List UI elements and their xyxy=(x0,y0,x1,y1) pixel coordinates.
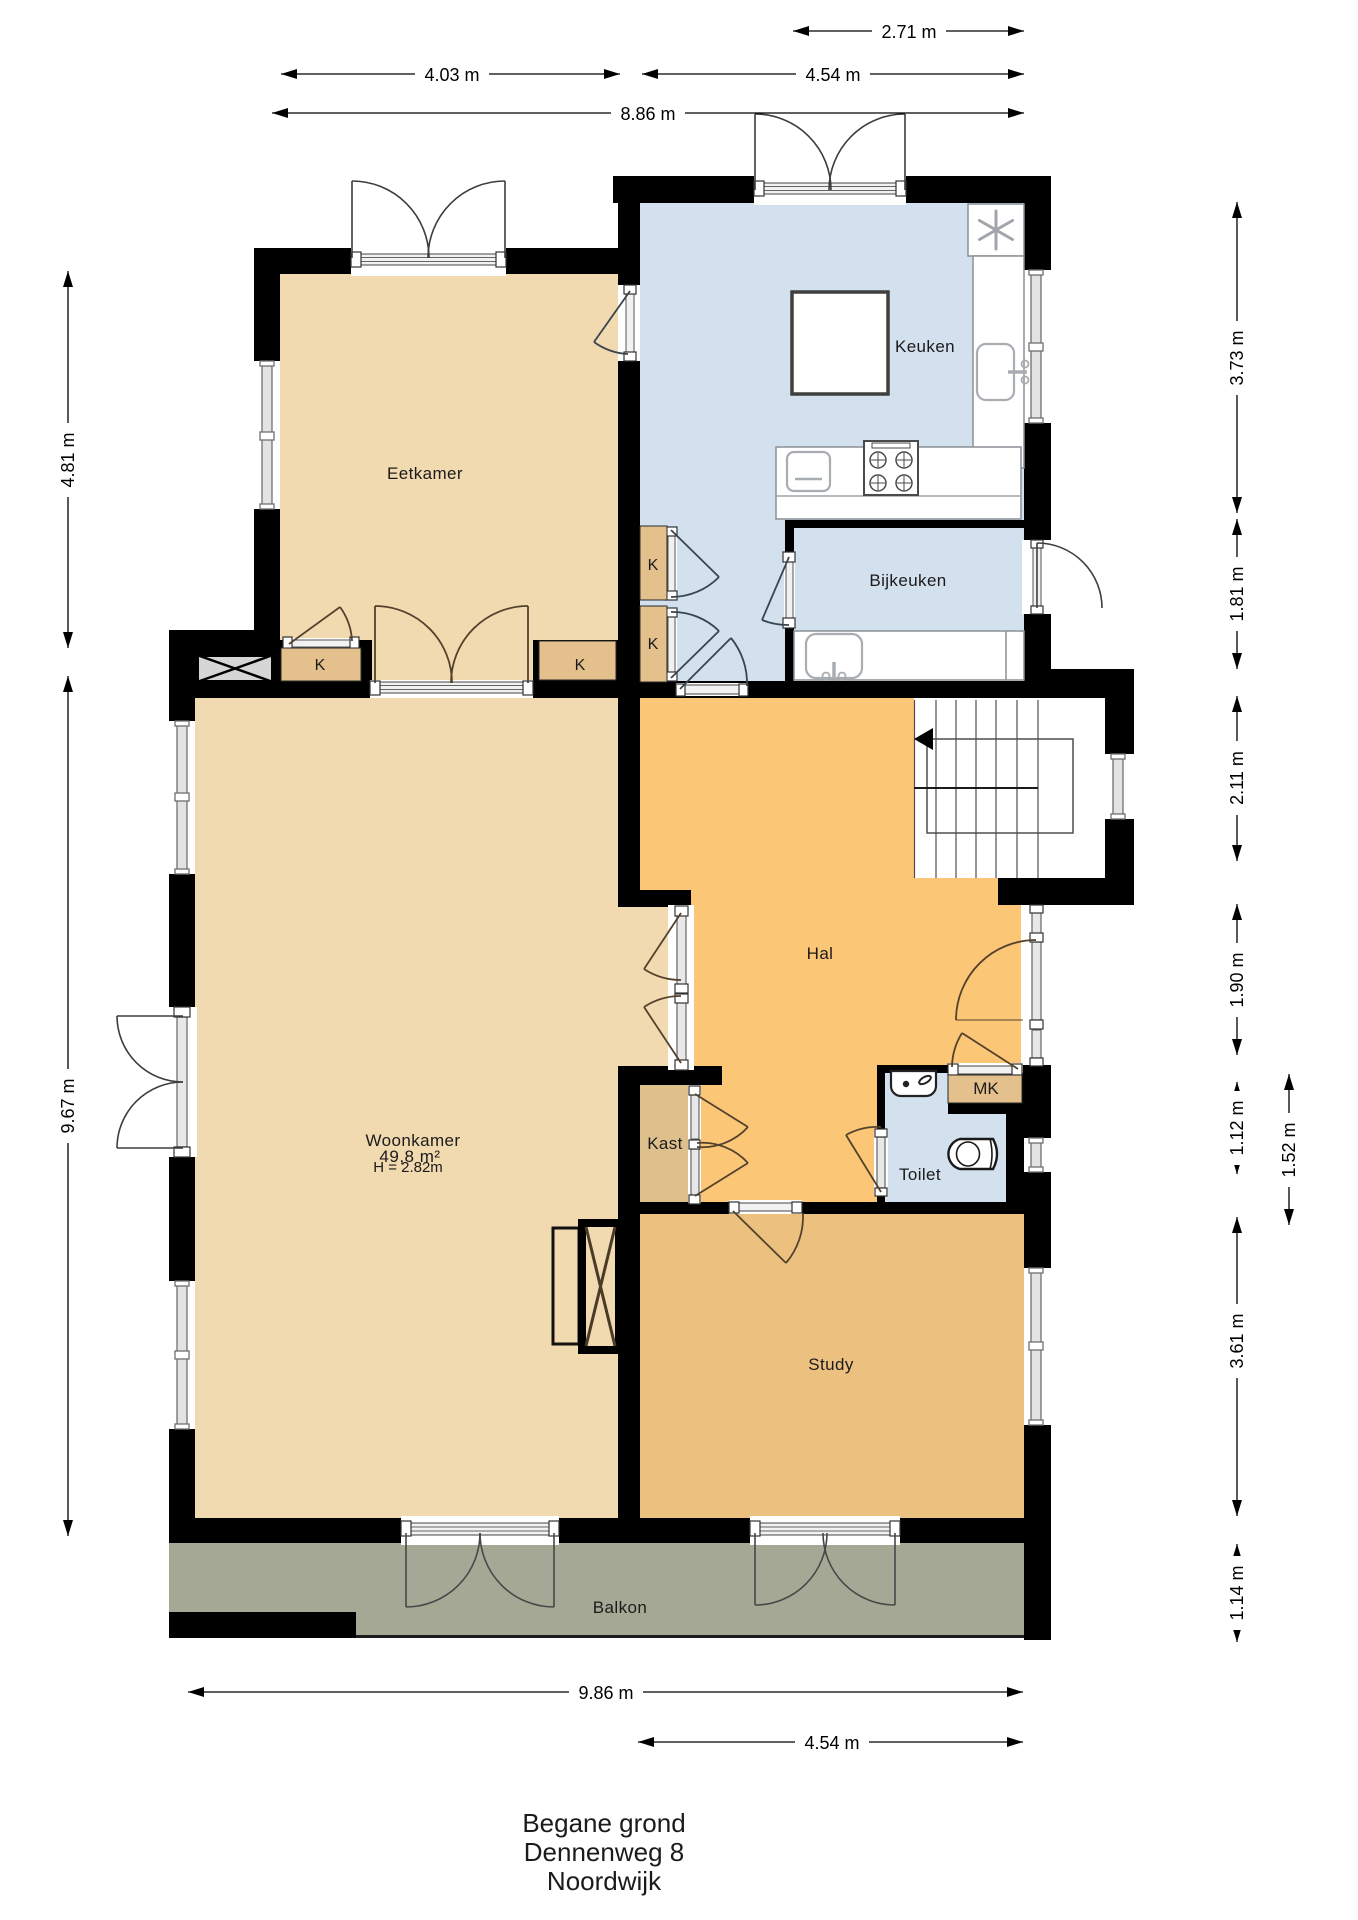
svg-text:Dennenweg 8: Dennenweg 8 xyxy=(524,1837,684,1867)
svg-text:K: K xyxy=(648,557,659,574)
svg-text:3.61 m: 3.61 m xyxy=(1227,1313,1247,1368)
svg-text:1.12 m: 1.12 m xyxy=(1227,1100,1247,1155)
svg-text:2.71 m: 2.71 m xyxy=(881,22,936,42)
svg-text:Begane grond: Begane grond xyxy=(522,1808,685,1838)
svg-text:Toilet: Toilet xyxy=(899,1165,941,1184)
svg-text:4.54 m: 4.54 m xyxy=(804,1733,859,1753)
svg-text:3.73 m: 3.73 m xyxy=(1227,330,1247,385)
svg-text:1.81 m: 1.81 m xyxy=(1227,566,1247,621)
svg-text:9.86 m: 9.86 m xyxy=(578,1683,633,1703)
svg-text:4.81 m: 4.81 m xyxy=(58,432,78,487)
svg-text:8.86 m: 8.86 m xyxy=(620,104,675,124)
svg-text:K: K xyxy=(648,636,659,653)
svg-text:Balkon: Balkon xyxy=(593,1598,647,1617)
svg-text:K: K xyxy=(575,657,586,674)
svg-text:1.90 m: 1.90 m xyxy=(1227,952,1247,1007)
svg-text:1.52 m: 1.52 m xyxy=(1279,1122,1299,1177)
svg-text:Eetkamer: Eetkamer xyxy=(387,464,463,483)
svg-text:Noordwijk: Noordwijk xyxy=(547,1866,662,1896)
svg-text:Keuken: Keuken xyxy=(895,337,955,356)
svg-text:9.67 m: 9.67 m xyxy=(58,1078,78,1133)
svg-text:4.54 m: 4.54 m xyxy=(805,65,860,85)
svg-text:MK: MK xyxy=(973,1079,999,1098)
svg-text:K: K xyxy=(315,657,326,674)
svg-text:2.11 m: 2.11 m xyxy=(1227,751,1247,805)
svg-text:Hal: Hal xyxy=(807,944,834,963)
svg-text:Kast: Kast xyxy=(647,1134,683,1153)
svg-text:4.03 m: 4.03 m xyxy=(424,65,479,85)
svg-text:1.14 m: 1.14 m xyxy=(1227,1565,1247,1620)
svg-text:H = 2.82m: H = 2.82m xyxy=(373,1159,443,1176)
svg-text:Bijkeuken: Bijkeuken xyxy=(869,571,946,590)
svg-text:Study: Study xyxy=(808,1355,854,1374)
